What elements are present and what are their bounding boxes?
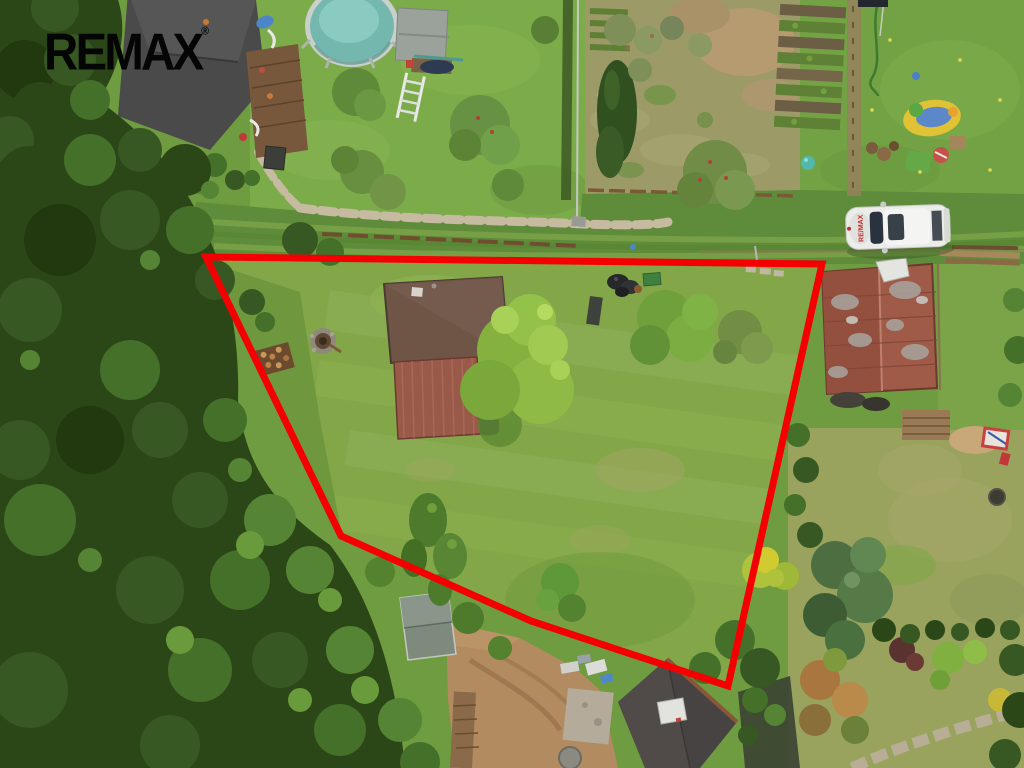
car-hood-label: RE/MAX bbox=[858, 214, 866, 242]
ball bbox=[634, 285, 642, 293]
remax-car: RE/MAX bbox=[845, 199, 955, 261]
crate bbox=[950, 136, 966, 149]
wood-stack bbox=[902, 410, 950, 440]
aerial-photo: RE/MAX bbox=[0, 0, 1024, 768]
teal-ball bbox=[801, 156, 815, 170]
gate bbox=[571, 216, 586, 227]
hedge-line bbox=[566, 0, 568, 200]
windshield bbox=[869, 212, 883, 244]
registered-mark: ® bbox=[201, 25, 209, 37]
rear-window bbox=[931, 210, 942, 240]
chimney bbox=[411, 287, 423, 297]
mower bbox=[643, 273, 661, 286]
skylight bbox=[657, 698, 686, 724]
wood-walkway bbox=[450, 691, 476, 768]
blue-ball bbox=[912, 72, 920, 80]
compost-bin bbox=[264, 146, 286, 170]
water-tank bbox=[559, 747, 581, 768]
bucket bbox=[630, 244, 636, 250]
red-ball bbox=[239, 133, 247, 141]
concrete-pad bbox=[563, 688, 614, 745]
wire-fence bbox=[577, 0, 578, 228]
remax-logo-text: REMAX bbox=[44, 23, 201, 81]
sandbox bbox=[982, 428, 1008, 449]
toy-car bbox=[905, 150, 932, 174]
sunroof bbox=[888, 214, 905, 241]
remax-logo: REMAX® bbox=[44, 26, 209, 78]
compost-ring bbox=[989, 489, 1005, 505]
red-item bbox=[406, 60, 414, 68]
solar-panel bbox=[858, 0, 888, 7]
